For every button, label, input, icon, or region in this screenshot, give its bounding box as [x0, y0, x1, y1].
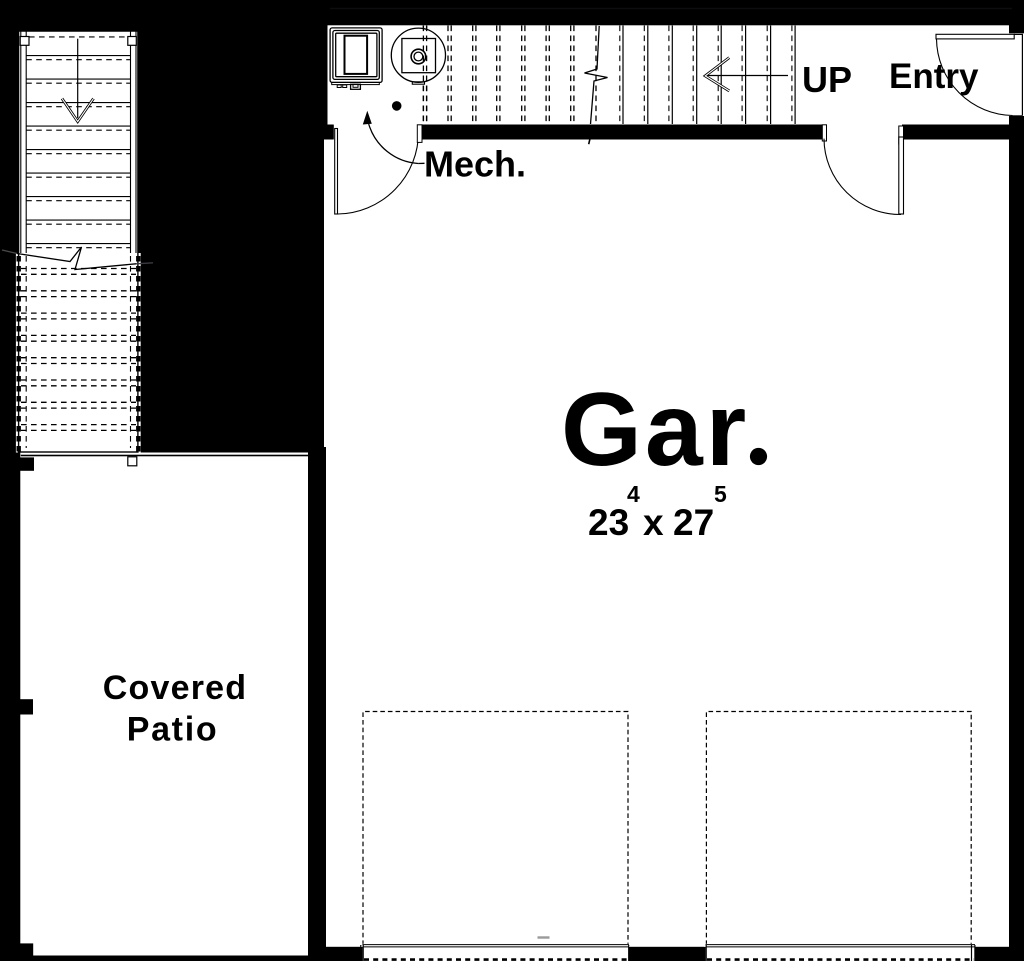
- svg-text:Mech.: Mech.: [424, 143, 526, 184]
- svg-text:x: x: [643, 502, 664, 543]
- svg-text:23: 23: [588, 502, 629, 543]
- svg-text:Covered: Covered: [103, 669, 247, 707]
- svg-text:27: 27: [673, 502, 714, 543]
- svg-text:Patio: Patio: [127, 711, 219, 749]
- svg-text:UP: UP: [802, 59, 852, 100]
- svg-text:Entry: Entry: [889, 57, 979, 96]
- svg-text:5: 5: [714, 481, 727, 507]
- svg-text:4: 4: [627, 481, 640, 507]
- svg-text:Gar: Gar: [561, 372, 749, 488]
